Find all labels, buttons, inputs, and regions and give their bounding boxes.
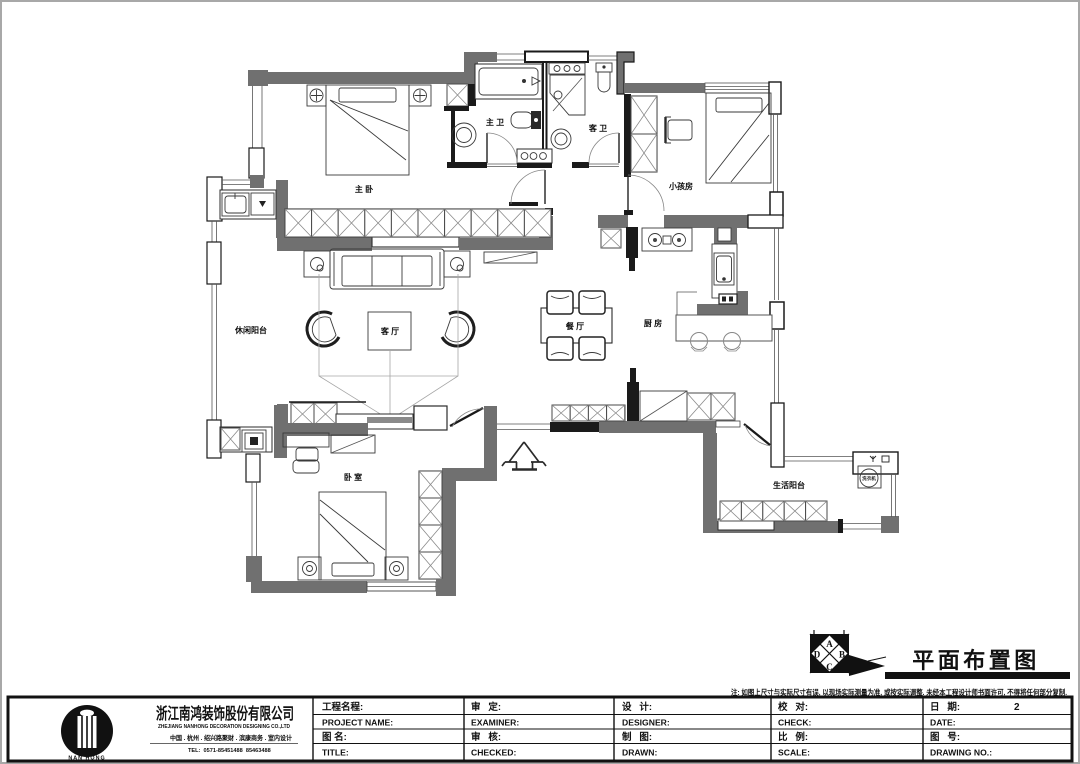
svg-text:TEL: 0571-85451488 85463488: TEL: 0571-85451488 85463488 xyxy=(188,748,271,754)
svg-text:CHECK:: CHECK: xyxy=(778,718,812,728)
svg-text:生活阳台: 生活阳台 xyxy=(773,480,805,490)
svg-text:洗衣机: 洗衣机 xyxy=(862,475,876,482)
svg-text:A: A xyxy=(826,639,833,649)
svg-text:比 例:: 比 例: xyxy=(778,731,808,743)
svg-text:小孩房: 小孩房 xyxy=(668,181,693,191)
svg-text:2: 2 xyxy=(1014,702,1020,713)
svg-text:DRAWING NO.:: DRAWING NO.: xyxy=(930,748,992,758)
svg-text:B: B xyxy=(839,650,845,660)
svg-text:休闲阳台: 休闲阳台 xyxy=(234,325,267,335)
svg-text:C: C xyxy=(826,662,833,672)
svg-text:制 图:: 制 图: xyxy=(622,731,652,743)
svg-text:平面布置图: 平面布置图 xyxy=(912,648,1040,673)
svg-text:校 对:: 校 对: xyxy=(778,701,808,713)
svg-text:NAN HONG: NAN HONG xyxy=(68,756,105,762)
svg-text:审 核:: 审 核: xyxy=(471,731,501,743)
svg-text:ZHEJIANG NANHONG DECORATION DE: ZHEJIANG NANHONG DECORATION DESIGNING CO… xyxy=(158,724,290,730)
svg-text:D: D xyxy=(814,650,821,660)
svg-text:CHECKED:: CHECKED: xyxy=(471,748,516,758)
svg-text:中国 . 杭州 . 绍兴路聚财 . 滨康商务 . 室内设计: 中国 . 杭州 . 绍兴路聚财 . 滨康商务 . 室内设计 xyxy=(170,733,293,742)
svg-text:餐 厅: 餐 厅 xyxy=(565,321,584,331)
svg-text:工程名程:: 工程名程: xyxy=(322,701,363,713)
svg-text:日 期:: 日 期: xyxy=(930,701,960,713)
svg-text:DRAWN:: DRAWN: xyxy=(622,748,657,758)
svg-text:图 号:: 图 号: xyxy=(930,732,960,743)
svg-text:卧 室: 卧 室 xyxy=(344,472,362,482)
svg-text:浙江南鸿装饰股份有限公司: 浙江南鸿装饰股份有限公司 xyxy=(156,704,294,723)
svg-text:设 计:: 设 计: xyxy=(622,701,652,713)
svg-text:图 名:: 图 名: xyxy=(322,731,347,743)
svg-text:审 定:: 审 定: xyxy=(471,701,501,713)
svg-text:EXAMINER:: EXAMINER: xyxy=(471,718,519,728)
svg-text:DATE:: DATE: xyxy=(930,718,956,728)
svg-text:主 卧: 主 卧 xyxy=(355,184,373,194)
svg-text:PROJECT NAME:: PROJECT NAME: xyxy=(322,718,393,728)
svg-text:客 厅: 客 厅 xyxy=(380,326,399,336)
svg-text:TITLE:: TITLE: xyxy=(322,748,349,758)
svg-text:DESIGNER:: DESIGNER: xyxy=(622,718,670,728)
svg-text:主 卫: 主 卫 xyxy=(486,117,504,127)
svg-text:客 卫: 客 卫 xyxy=(588,123,607,133)
svg-text:厨 房: 厨 房 xyxy=(644,318,662,328)
svg-text:SCALE:: SCALE: xyxy=(778,748,810,758)
